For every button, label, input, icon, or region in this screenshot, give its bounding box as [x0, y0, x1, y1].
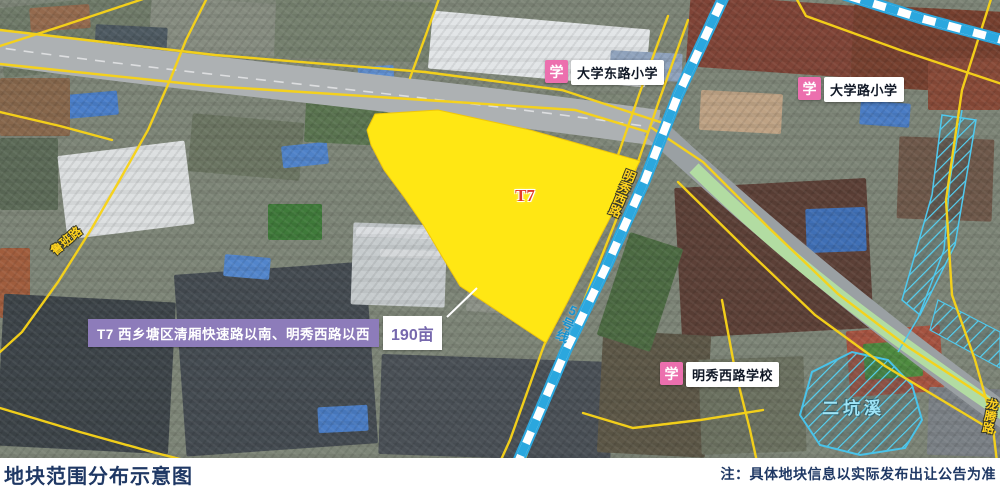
parcel-area-badge: 190亩 — [383, 316, 442, 350]
figure-note: 注：具体地块信息以实际发布出让公告为准 — [721, 464, 997, 484]
stream-label: 二坑溪 — [822, 394, 885, 419]
school-name: 明秀西路学校 — [686, 362, 779, 387]
school-icon: 学 — [660, 362, 683, 385]
figure-title: 地块范围分布示意图 — [4, 460, 193, 489]
parcel-polygon-t7 — [367, 110, 640, 343]
land-parcel-map-figure: T7 学 大学东路小学 学 大学路小学 学 明秀西路学校 T7 西乡塘区清厢快速… — [0, 0, 1000, 490]
school-icon: 学 — [545, 60, 568, 83]
caption-bar: 地块范围分布示意图 注：具体地块信息以实际发布出让公告为准 — [0, 458, 1000, 490]
parcel-description: T7 西乡塘区清厢快速路以南、明秀西路以西 — [88, 319, 379, 347]
school-name: 大学东路小学 — [571, 60, 664, 85]
callout-line — [447, 288, 477, 317]
parcel-info-bar: T7 西乡塘区清厢快速路以南、明秀西路以西 190亩 — [88, 316, 442, 350]
school-label-daxue: 学 大学路小学 — [798, 77, 904, 102]
school-label-daxue-east: 学 大学东路小学 — [545, 60, 664, 85]
school-label-mingxiu-west: 学 明秀西路学校 — [660, 362, 779, 387]
parcel-id-label: T7 — [505, 186, 545, 206]
satellite-map: T7 学 大学东路小学 学 大学路小学 学 明秀西路学校 T7 西乡塘区清厢快速… — [0, 0, 1000, 458]
school-name: 大学路小学 — [824, 77, 904, 102]
school-icon: 学 — [798, 77, 821, 100]
map-graphics — [0, 0, 1000, 458]
